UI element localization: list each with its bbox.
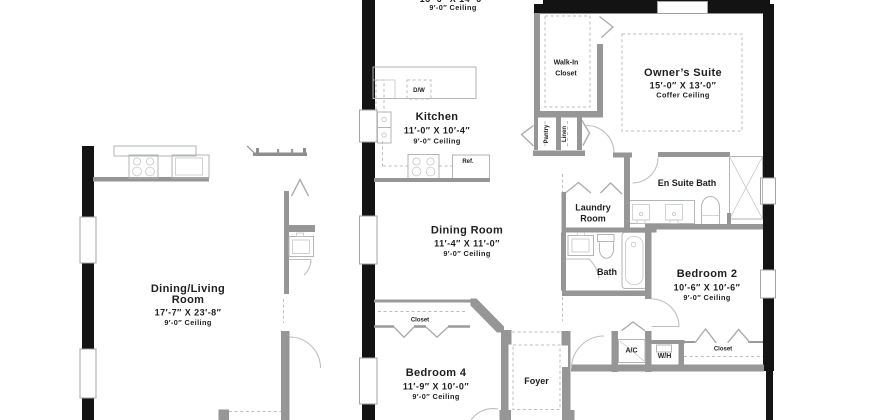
svg-text:11′-4″ X 11′-0″: 11′-4″ X 11′-0″ [434,239,500,249]
svg-text:9′-0″ Ceiling: 9′-0″ Ceiling [429,3,476,12]
svg-text:En Suite Bath: En Suite Bath [658,178,717,188]
svg-text:9′-0″ Ceiling: 9′-0″ Ceiling [443,249,490,258]
svg-text:W/H: W/H [658,353,672,360]
svg-text:15′-0″ X 13′-0″: 15′-0″ X 13′-0″ [650,81,717,91]
svg-text:9′-0″ Ceiling: 9′-0″ Ceiling [413,137,460,146]
svg-text:Kitchen: Kitchen [416,111,459,123]
svg-text:Foyer: Foyer [524,376,549,386]
svg-text:9′-0″ Ceiling: 9′-0″ Ceiling [412,392,459,401]
svg-text:Room: Room [580,214,606,224]
svg-text:Walk-In: Walk-In [554,60,579,67]
svg-text:Bedroom 2: Bedroom 2 [677,268,738,280]
svg-text:Linen: Linen [562,126,568,142]
svg-text:Dining Room: Dining Room [431,225,503,237]
svg-text:Laundry: Laundry [575,203,611,213]
svg-text:Room: Room [172,294,205,306]
svg-text:Bedroom 4: Bedroom 4 [406,367,467,379]
svg-text:Pantry: Pantry [544,124,550,143]
svg-text:Closet: Closet [411,318,429,324]
svg-text:9′-0″ Ceiling: 9′-0″ Ceiling [164,318,211,327]
svg-text:11′-9″ X 10′-0″: 11′-9″ X 10′-0″ [403,382,469,392]
svg-text:10′-6″ X 10′-6″: 10′-6″ X 10′-6″ [674,283,741,293]
svg-text:11′-0″ X 10′-4″: 11′-0″ X 10′-4″ [404,126,470,136]
svg-text:Coffer Ceiling: Coffer Ceiling [656,91,709,100]
svg-text:9′-0″ Ceiling: 9′-0″ Ceiling [683,293,730,302]
svg-text:Ref.: Ref. [462,159,474,165]
svg-text:D/W: D/W [413,88,425,94]
svg-text:Closet: Closet [714,347,732,353]
svg-text:17′-7″ X 23′-8″: 17′-7″ X 23′-8″ [155,308,222,318]
svg-text:Owner’s Suite: Owner’s Suite [644,67,722,79]
svg-text:Bath: Bath [597,267,617,277]
svg-text:Closet: Closet [555,71,577,78]
svg-text:Dining/Living: Dining/Living [151,283,225,295]
svg-text:A/C: A/C [625,348,637,355]
